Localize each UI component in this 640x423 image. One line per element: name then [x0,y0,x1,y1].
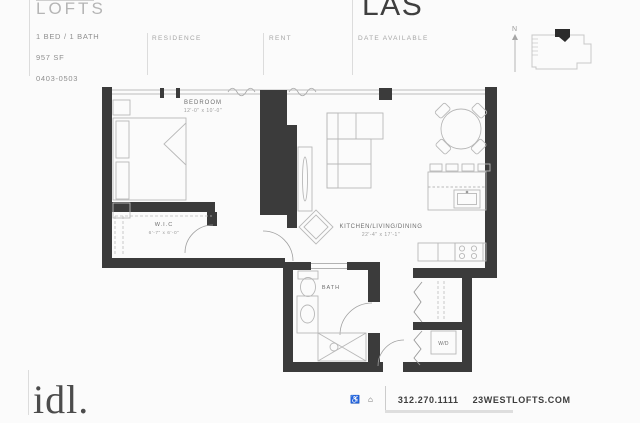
header-divider-2 [147,33,148,75]
unit-size: 957 SF [36,53,64,62]
equal-housing-icon: ⌂ [368,395,373,405]
left-wall [102,87,112,268]
pillow [116,162,129,199]
burner [459,246,464,251]
header-divider-3 [263,33,264,75]
walls [102,87,497,372]
column-header-residence: RESIDENCE [152,35,202,42]
column-jamb [287,215,297,228]
accent-table [299,210,333,244]
toilet-bowl [301,278,316,297]
plan-name-title: LAS [362,0,423,23]
wic-door-arc [185,225,213,253]
bath-door-jamb-upper [368,262,380,302]
nightstand [113,100,130,115]
center-column [260,125,297,215]
kitchen-living-dining-dims: 22'-4" x 17'-1" [362,232,400,238]
closet-bifold-door [414,282,422,322]
bath-door-arc [340,303,372,335]
bar-stool [462,164,474,171]
floorplan-drawing: BEDROOM 12'-0" x 10'-0" W.I.C 6'-7" x 6'… [100,85,500,375]
bedroom-door-arc [263,231,293,261]
dining-table [441,109,481,149]
bottom-right-wall [403,362,472,372]
idl-logo: idl. [33,376,89,423]
tv-screen [303,157,308,201]
bath-label: BATH [322,285,340,291]
header-divider-1 [29,0,30,76]
bath-door-jamb-lower [368,333,380,372]
brand-lofts: LOFTS [36,0,106,19]
bath-top-thin-wall [311,264,347,269]
bar-stool [430,164,442,171]
wic-top-wall [102,202,215,212]
bottom-left-wall [102,258,285,268]
contact-divider [385,386,386,412]
column-upper [260,90,287,125]
footer-divider-left [28,370,29,415]
wic-label: W.I.C [155,222,173,228]
window-symbol [228,88,255,96]
dining-chair [435,103,451,119]
kitchen-fixtures [418,164,490,261]
wd-label: W/D [438,341,449,347]
bar-stool [446,164,458,171]
unit-info-block: 1 BED / 1 BATH 957 SF 0403-0503 [36,32,99,85]
kitchen-step-wall [413,268,497,278]
pillow [116,121,129,158]
contact-block: ♿ ⌂ 312.270.1111 23WESTLOFTS.COM [350,388,571,412]
column-header-date-available: DATE AVAILABLE [358,35,429,42]
unit-numbers: 0403-0503 [36,74,78,83]
range [455,243,483,261]
closet-divider-wall [413,322,472,330]
sink-faucet [466,191,469,194]
living-furniture [298,103,487,244]
bedroom-furniture [113,100,186,218]
window-symbol [289,88,316,96]
website-url: 23WESTLOFTS.COM [473,395,571,405]
room-labels: BEDROOM 12'-0" x 10'-0" W.I.C 6'-7" x 6'… [149,100,449,347]
north-arrow-icon [510,34,520,74]
dining-chair [471,139,487,155]
sofa-top-section [327,113,383,139]
bed-fold [164,123,186,165]
cut-off-address-line [385,410,513,413]
header-divider-4 [352,0,353,75]
sofa-side-section [327,139,371,188]
burner [459,253,464,258]
kitchen-living-dining-label: KITCHEN/LIVING/DINING [340,224,423,230]
key-plan-unit-marker [555,29,570,42]
wd-bifold-door [414,331,422,365]
sofa-back [327,113,338,188]
bed [113,118,186,200]
accessibility-icon: ♿ [350,395,360,405]
vanity-sink [301,305,315,323]
key-plan-unit-ticks [532,39,538,55]
compass-north-label: N [512,26,518,33]
wic-door-jamb [207,212,217,226]
bath-left-wall [283,262,293,372]
wic-dims: 6'-7" x 6'-0" [149,230,180,236]
burner [471,253,476,258]
shower-drain [330,343,338,351]
column-header-rent: RENT [269,35,292,42]
unit-type: 1 BED / 1 BATH [36,32,99,41]
dining-chair [435,139,451,155]
floorplan-flyer-page: { "header": { "brand": "LOFTS", "plan_na… [0,0,640,415]
building-key-plan [527,27,599,77]
phone-number: 312.270.1111 [398,395,459,405]
kitchen-island [428,172,486,210]
burner [471,246,476,251]
right-wall [485,87,497,278]
bedroom-label: BEDROOM [184,100,222,106]
bedroom-dims: 12'-0" x 10'-0" [184,108,222,114]
